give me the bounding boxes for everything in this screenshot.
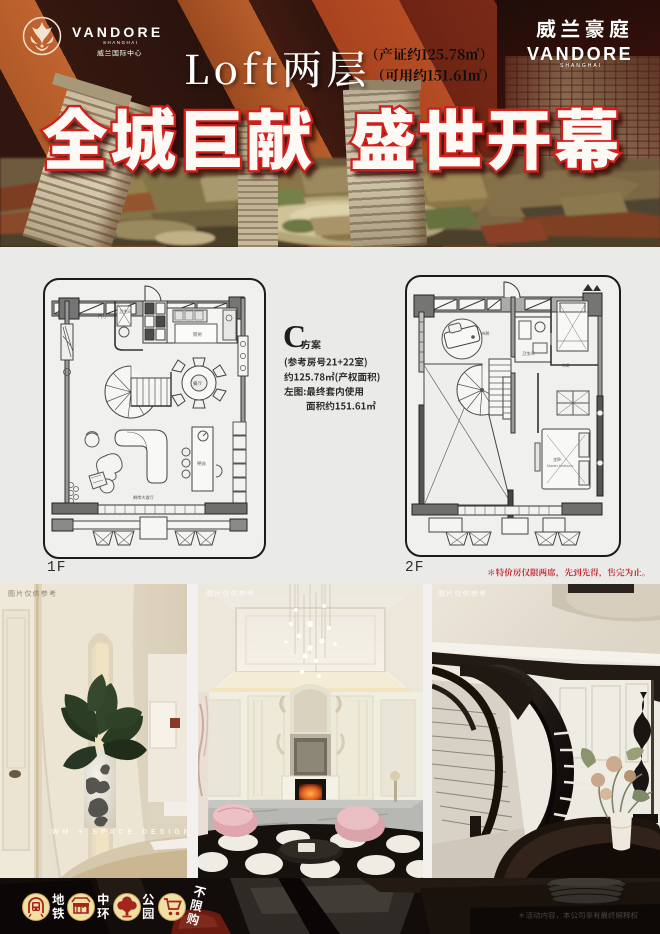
svg-text:WM + SPACE DESIGN: WM + SPACE DESIGN — [52, 829, 187, 836]
svg-text:Master bedroom: Master bedroom — [547, 464, 573, 468]
